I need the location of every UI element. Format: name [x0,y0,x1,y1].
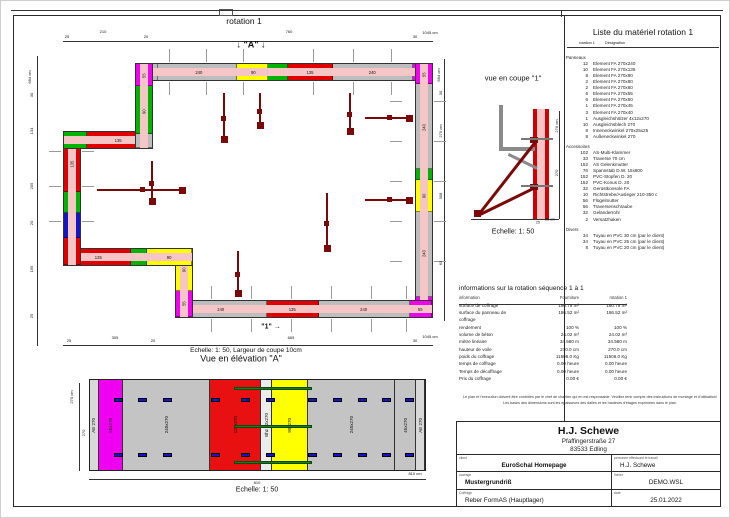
company-address-street: Pfaffingerstraße 27 [457,438,720,445]
plan-wall: 552409024055 [415,63,433,318]
formwork-stripe [76,132,80,265]
material-name: Versatzhaken [593,217,720,223]
panel-clamp [211,398,220,402]
info-label: volume de béton [459,331,523,338]
wall-segment [76,213,80,238]
formwork-cell: Coffrage Reber FormAS (Hauptlager) [457,490,612,507]
prop-joint [347,112,352,117]
wall-segment [64,144,87,148]
elevation-panel-label: 45x270 [403,418,408,433]
annotation-text: Désignation [605,42,625,46]
annotation-text: 810 cm [408,472,421,476]
traverse-tick [391,49,392,62]
traverse-tick [390,141,402,142]
coupe-wall [533,109,549,219]
annotation-text: 25 [65,35,69,39]
traverse-tick [313,82,314,95]
prop-joint [221,116,226,121]
annotation-text: 665 [288,336,295,340]
panel-clamp [358,398,367,402]
panel-clamp [114,453,123,457]
wall-segment [147,261,192,265]
traverse-tick [211,319,212,332]
traverse-tick [49,221,61,222]
wall-core: 24013524055 [176,305,432,313]
info-value-rotation: 0.00 heure [579,360,627,367]
info-value-fourniture: 0.00 € [523,375,579,382]
annotation-text: 1045 cm [422,335,437,339]
info-value-rotation: 34.580 m [579,338,627,345]
elevation-panel-label: 240x270 [349,416,354,433]
traverse-tick [390,221,402,222]
rotation-info-panel: informations sur la rotation séquence 1 … [459,285,627,383]
annotation-text: rotation 1 [579,42,595,46]
coupe-traverse-lower [521,185,553,187]
annotation-text: 684 cm [437,68,441,81]
panel-clamp [382,398,391,402]
prop-joint [324,221,329,226]
plan-wall: 452409013524055 [141,63,433,81]
wall-segment-label [64,136,84,144]
annotation-text: "1" → [261,324,280,331]
wall-segment-label [68,239,76,265]
wall-segment-label [133,253,147,261]
dimension-line [11,10,723,11]
info-value-rotation: 100 % [579,324,627,331]
wall-segment [319,313,410,317]
material-row: 8Tuyau en PVC 20 cm (par le client) [566,245,720,251]
prop-joint [235,272,240,277]
company-name: H.J. Schewe [457,425,720,437]
traverse-tick [313,49,314,62]
material-row: 2Versatzhaken [566,217,720,223]
title-block-row-client: client EuroSchal Homepage personne effec… [457,455,720,472]
annotation-text: rotation 1 [226,17,261,26]
wall-core: 13590 [64,253,192,261]
material-group-label: Panneaux [566,55,720,60]
coupe-traverse-upper [521,138,553,140]
wall-segment-label [68,216,76,239]
traverse-tick [353,49,354,62]
wall-segment-label [140,136,148,148]
wall-segment-label: 240 [333,68,411,76]
title-block-row-formwork: Coffrage Reber FormAS (Hauptlager) date … [457,490,720,507]
title-block-row-project: ouvrage Mustergrundriß fichier DEMO.WSL [457,472,720,489]
formwork-stripe [64,261,192,265]
info-row: rendement100 %100 % [459,324,627,331]
wall-segment [428,64,432,84]
info-row: volume de béton24.02 m³24.02 m³ [459,331,627,338]
formwork-value: Reber FormAS (Hauptlager) [457,497,611,504]
annotation-text: 25 [67,339,71,343]
info-value-fourniture: 186.52 m² [523,309,579,324]
prop-foot [347,128,354,135]
traverse-tick [206,49,207,62]
rotation-info-table: informationFourniturerotation 1surface d… [459,295,627,383]
wall-segment [428,180,432,212]
wall-segment-label: 240 [420,86,428,169]
company-address-city: 83533 Edling [457,446,720,453]
traverse-tick [243,49,244,62]
coupe-console-vertical [499,105,503,151]
info-value-fourniture: 0.00 heure [523,360,579,367]
prop-foot [406,115,413,122]
annotation-text: 210 [100,30,107,34]
annotation-text: 305 [112,336,119,340]
wall-segment [428,84,432,169]
wall-segment-label: 240 [319,305,409,313]
info-label: rendement [459,324,523,331]
annotation-text: 270 cm [555,119,559,132]
disclaimer-line-2: Les bases des dimensions sont les épaiss… [459,401,721,407]
info-value-rotation: 0.00 € [579,375,627,382]
info-row: surface de coffrage180.79 m²180.79 m² [459,302,627,309]
traverse-tick [251,319,252,332]
traverse-tick [406,286,407,299]
panel-clamp [382,453,391,457]
wall-segment-label [68,197,76,216]
traverse-tick [169,49,170,62]
annotation-text: 205 [30,183,34,190]
wall-segment [410,313,432,317]
date-cell: date 25.01.2022 [612,490,720,507]
panel-clamp [163,398,172,402]
annotation-text: 63 [439,261,443,265]
annotation-text: 684 cm [28,70,32,83]
formwork-stripe [428,64,432,317]
wall-segment [267,313,319,317]
info-row: Temps de décoffrage0.00 heure0.00 heure [459,368,627,375]
traverse-tick [331,286,332,299]
panel-clamp [405,398,414,402]
worker-value: H.J. Schewe [612,462,720,469]
material-group-label: Accessoires [566,144,720,149]
project-value: Mustergrundriß [457,479,611,486]
dimension-line [561,10,562,17]
traverse-tick [434,221,446,222]
traverse-tick [434,101,446,102]
wall-segment-label: 135 [266,305,319,313]
wall-segment [268,76,289,80]
dimension-line [63,345,433,346]
traverse-tick [169,82,170,95]
info-row: Prix du coffrage0.00 €0.00 € [459,375,627,382]
annotation-text: 270 [82,430,86,437]
panel-clamp [241,398,250,402]
annotation-text: 270 cm [70,390,74,403]
info-value-rotation: 186.52 m² [579,309,627,324]
traverse-tick [211,286,212,299]
formwork-stripe [148,64,152,148]
panel-clamp [114,398,123,402]
client-value: EuroSchal Homepage [457,462,611,469]
info-label: Prix du coffrage [459,375,523,382]
wall-segment [76,192,80,213]
annotation-text: 25 cm [545,218,555,222]
wall-segment [148,134,152,148]
panel-clamp [308,398,317,402]
wall-segment [148,86,152,134]
annotation-text: 20 [151,339,155,343]
plan-wall: 24013524055 [175,300,433,318]
info-label: surface du panneau de coffrage [459,309,523,324]
info-row: hauteur de voile270.0 cm270.0 cm [459,346,627,353]
wall-segment [288,76,333,80]
info-row: mètre linéaire34.580 m34.580 m [459,338,627,345]
wall-segment [428,169,432,180]
traverse-tick [82,221,94,222]
panel-clamp [163,453,172,457]
annotation-text: 810 [254,481,261,485]
panel-clamp [358,453,367,457]
wall-segment-label [269,68,287,76]
prop-joint [257,109,262,114]
traverse-tick [390,101,402,102]
drawing-sheet: 4524090135240555524090240552401352405590… [0,0,730,518]
info-label: mètre linéaire [459,338,523,345]
wall-segment-label: 90 [146,253,192,261]
info-value-rotation: 11506.0 Kg [579,353,627,360]
info-header-fourniture: Fourniture [523,295,579,302]
wall-segment-label: 135 [287,68,334,76]
traverse-tick [391,82,392,95]
dimension-line [444,59,445,321]
elevation-panel-label: AE 270 [91,418,96,433]
annotation-text: 30 [30,93,34,97]
formwork-stripe [142,76,432,80]
annotation-text: 195 [30,266,34,273]
annotation-text: vue en coupe "1" [485,74,542,82]
annotation-text: 30 [413,35,417,39]
plan-wall: 135 [63,131,81,266]
annotation-text: Echelle: 1: 50 [236,487,278,494]
info-value-fourniture: 11506.0 Kg [523,353,579,360]
wall-segment-label: 90 [238,68,269,76]
annotation-text: 760 [286,30,293,34]
dimension-line [79,383,80,471]
annotation-text: ↓ "A" ↓ [236,41,265,50]
plan-wall: 5590 [135,63,153,149]
panel-clamp [138,398,147,402]
wall-segment [333,76,413,80]
wall-segment-label: 90 [140,88,148,136]
wall-segment [131,261,147,265]
info-label: poids du coffrage [459,353,523,360]
annotation-text: 20 [30,221,34,225]
info-value-fourniture: 24.02 m³ [523,331,579,338]
file-cell: fichier DEMO.WSL [612,472,720,488]
annotation-text: 358 [439,193,443,200]
material-row: 8Außeneckwinkel 270 [566,134,720,140]
dimension-line [567,47,719,48]
traverse-tick [82,186,94,187]
annotation-text: Vue en élévation "A" [200,355,282,364]
title-block: H.J. Schewe Pfaffingerstraße 27 83533 Ed… [456,421,721,507]
dimension-line [37,56,38,346]
date-value: 25.01.2022 [612,497,720,504]
traverse-tick [206,82,207,95]
info-label: temps de coffrage [459,360,523,367]
info-value-rotation: 180.79 m² [579,302,627,309]
prop-joint [140,187,145,192]
info-row: surface du panneau de coffrage186.52 m²1… [459,309,627,324]
info-value-fourniture: 100 % [523,324,579,331]
info-row: temps de coffrage0.00 heure0.00 heure [459,360,627,367]
material-group-label: Divers [566,227,720,232]
annotation-text: 30 [413,339,417,343]
traverse-tick [371,286,372,299]
annotation-text: 270 cm [439,124,443,137]
traverse-tick [49,186,61,187]
elevation-panel: AE 270 [90,380,99,470]
panel-clamp [308,453,317,457]
formwork-stripe [176,313,432,317]
wall-segment [188,291,192,317]
traverse-tick [243,82,244,95]
panel-clamp [241,453,250,457]
info-value-fourniture: 34.580 m [523,338,579,345]
disclaimer-notes: Le plan et l'exécution doivent être cont… [459,395,721,406]
elevation-panel: AE 270 [416,380,425,470]
prop-foot [235,290,242,297]
file-value: DEMO.WSL [612,479,720,486]
client-cell: client EuroSchal Homepage [457,455,612,471]
info-row: poids du coffrage11506.0 Kg11506.0 Kg [459,353,627,360]
info-value-rotation: 24.02 m³ [579,331,627,338]
prop-joint [387,197,392,202]
info-label: hauteur de voile [459,346,523,353]
elevation-panel-label: 55x270 [108,418,113,433]
wall-segment-label: 90 [420,179,428,212]
traverse-tick [331,319,332,332]
wall-core: 552409024055 [420,64,428,317]
annotation-text: 25 [30,314,34,318]
wall-core: 452409013524055 [142,68,432,76]
elevation-panel-label: 240x270 [164,416,169,433]
materials-list: Panneaux12Element FA 270x24010Element FA… [566,51,720,251]
info-value-rotation: 0.00 heure [579,368,627,375]
wall-segment [428,212,432,297]
prop-foot [406,197,413,204]
traverse-tick [353,82,354,95]
project-label: ouvrage [459,473,471,477]
panel-clamp [138,453,147,457]
worker-label: personne effectuant le travail [614,456,657,460]
wall-segment [148,64,152,86]
client-label: client [459,456,467,460]
panel-clamp [266,453,275,457]
prop-foot [179,187,186,194]
coupe-brace-foot [474,210,481,217]
prop-foot [257,122,264,129]
formwork-label: Coffrage [459,491,472,495]
spannstab-tie [234,425,312,428]
panel-clamp [211,453,220,457]
wall-core: 135 [68,132,76,265]
traverse-tick [82,151,94,152]
prop-joint [149,181,154,186]
material-qty: 8 [566,245,588,251]
traverse-tick [251,286,252,299]
traverse-tick [291,319,292,332]
date-label: date [614,491,621,495]
panel-clamp [333,453,342,457]
wall-segment-label: 240 [420,212,428,295]
traverse-tick [390,181,402,182]
wall-segment-label: 55 [420,64,428,86]
wall-segment-label: 55 [140,64,148,88]
material-qty: 2 [566,217,588,223]
info-value-rotation: 270.0 cm [579,346,627,353]
info-label: surface de coffrage [459,302,523,309]
panel-clamp [333,398,342,402]
traverse-tick [434,181,446,182]
annotation-text: Echelle: 1: 50 [492,229,534,236]
wall-segment-label [420,169,428,179]
traverse-tick [371,319,372,332]
wall-segment-label: 55 [180,290,188,317]
prop-foot [221,136,228,143]
info-header-rotation: rotation 1 [579,295,627,302]
traverse-tick [406,319,407,332]
annotation-text: 25 [536,221,540,225]
info-label: Temps de décoffrage [459,368,523,375]
traverse-tick [434,141,446,142]
wall-segment [158,76,238,80]
wall-segment [76,238,80,265]
info-value-fourniture: 270.0 cm [523,346,579,353]
info-value-fourniture: 180.79 m² [523,302,579,309]
material-qty: 8 [566,134,588,140]
info-value-fourniture: 0.00 heure [523,368,579,375]
worker-cell: personne effectuant le travail H.J. Sche… [612,455,720,471]
traverse-tick [390,261,402,262]
spannstab-tie [234,461,312,464]
material-name: Tuyau en PVC 20 cm (par le client) [593,245,720,251]
traverse-tick [49,151,61,152]
wall-segment-label: 240 [160,68,238,76]
project-cell: ouvrage Mustergrundriß [457,472,612,488]
prop-foot [149,198,156,205]
annotation-text: 270 [555,170,559,177]
title-block-company: H.J. Schewe Pfaffingerstraße 27 83533 Ed… [457,422,720,455]
annotation-text: Liste du matériel rotation 1 [593,28,693,37]
prop-foot [324,245,331,252]
panel-clamp [266,398,275,402]
material-name: Außeneckwinkel 270 [593,134,720,140]
plan-wall: 13590 [63,248,193,266]
annotation-text: 30 [439,91,443,95]
file-label: fichier [614,473,623,477]
elevation-panel-label: AE 270 [418,418,423,433]
annotation-text: 134 [30,128,34,135]
wall-core: 5590 [140,64,148,148]
traverse-tick [291,286,292,299]
panel-clamp [405,453,414,457]
info-header-row: informationFourniturerotation 1 [459,295,627,302]
annotation-text: 1045 cm [422,31,437,35]
rotation-info-title: informations sur la rotation séquence 1 … [459,285,627,292]
spannstab-tie [234,387,312,390]
disclaimer-line-1: Le plan et l'exécution doivent être cont… [459,395,721,401]
info-header-information: information [459,295,523,302]
annotation-text: 20 [144,35,148,39]
wall-segment [237,76,267,80]
wall-segment-label: 55 [408,305,432,313]
prop-joint [387,115,392,120]
dimension-line [559,111,560,219]
